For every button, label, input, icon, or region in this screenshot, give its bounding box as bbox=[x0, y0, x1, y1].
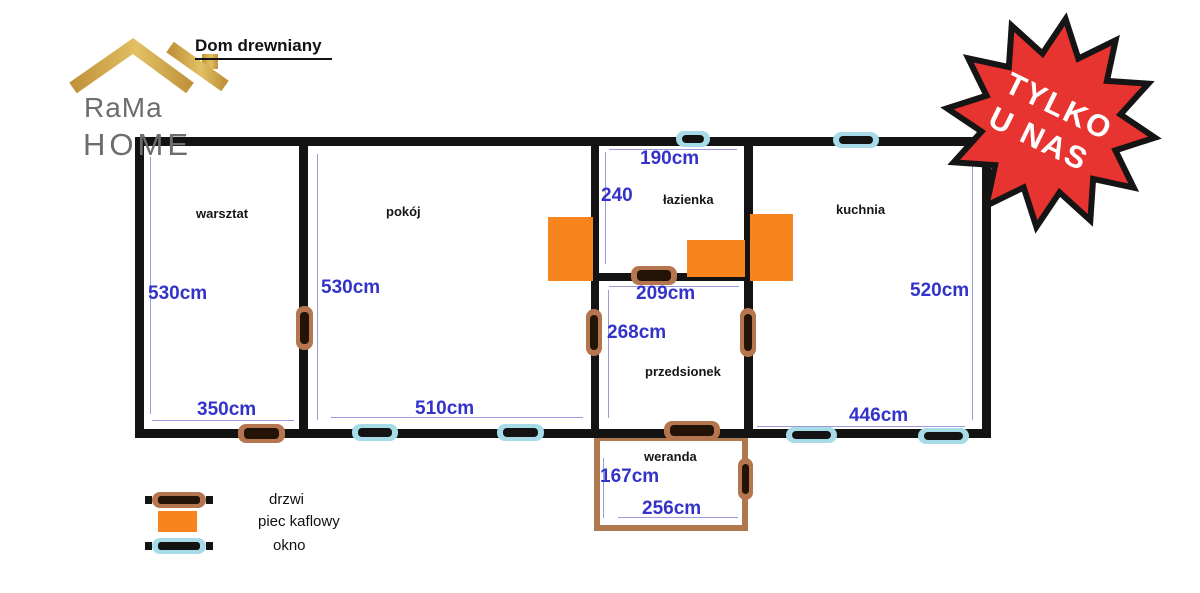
window-pane bbox=[792, 431, 831, 439]
dim-kuchnia-height: 520cm bbox=[910, 280, 969, 302]
door-leaf bbox=[670, 425, 714, 436]
legend-label-door: drzwi bbox=[269, 491, 304, 508]
dim-przedsionek-width: 209cm bbox=[636, 283, 695, 305]
window-icon bbox=[152, 538, 206, 554]
door-icon bbox=[152, 492, 206, 508]
door-leaf bbox=[590, 315, 598, 350]
window-pane bbox=[358, 428, 392, 437]
dim-warsztat-height: 530cm bbox=[148, 283, 207, 305]
dim-lazienka-height: 240 bbox=[601, 185, 633, 207]
window-symbol-pokoj-south-1 bbox=[352, 424, 398, 441]
window-pane bbox=[682, 135, 704, 143]
stove-symbol-kuchnia bbox=[750, 214, 793, 281]
logo-text-rama: RaMa bbox=[84, 92, 163, 124]
door-leaf bbox=[742, 464, 749, 494]
wall-lazienka-kuchnia bbox=[744, 137, 753, 438]
wall-stub bbox=[206, 542, 213, 550]
promo-badge-star-icon: TYLKO U NAS bbox=[938, 8, 1164, 238]
window-pane bbox=[839, 136, 873, 144]
window-symbol-lazienka-north bbox=[676, 131, 710, 147]
wall-stub bbox=[145, 496, 152, 504]
room-label-kuchnia: kuchnia bbox=[836, 202, 885, 217]
door-leaf bbox=[300, 312, 309, 344]
wall-left bbox=[135, 137, 144, 438]
door-symbol-warsztat-pokoj bbox=[296, 306, 313, 350]
wall-pokoj-lazienka bbox=[591, 137, 599, 438]
dim-warsztat-width: 350cm bbox=[197, 399, 256, 421]
dim-kuchnia-width: 446cm bbox=[849, 405, 908, 427]
page-title: Dom drewniany bbox=[195, 36, 332, 60]
stove-symbol-pokoj bbox=[548, 217, 593, 281]
dim-weranda-height: 167cm bbox=[600, 466, 659, 488]
window-pane bbox=[924, 432, 963, 440]
legend-label-window: okno bbox=[273, 537, 306, 554]
dim-weranda-width: 256cm bbox=[642, 498, 701, 520]
dim-line-przedsionek-v bbox=[608, 290, 609, 418]
wall-stub bbox=[206, 496, 213, 504]
dim-lazienka-width: 190cm bbox=[640, 148, 699, 170]
window-symbol-kuchnia-north bbox=[833, 132, 879, 148]
room-label-przedsionek: przedsionek bbox=[645, 364, 721, 379]
room-label-warsztat: warsztat bbox=[196, 206, 248, 221]
stove-symbol-lazienka bbox=[687, 240, 745, 277]
door-leaf bbox=[637, 270, 671, 281]
room-label-lazienka: łazienka bbox=[663, 192, 714, 207]
door-leaf bbox=[244, 428, 279, 439]
floor-plan-canvas: RaMa HOME Dom drewniany warsztat pokój ł… bbox=[0, 0, 1200, 593]
door-symbol-weranda-east bbox=[738, 458, 753, 500]
legend-label-stove: piec kaflowy bbox=[258, 513, 340, 530]
window-pane bbox=[503, 428, 538, 437]
dim-przedsionek-height: 268cm bbox=[607, 322, 666, 344]
star-shape bbox=[938, 8, 1164, 238]
window-symbol-kuchnia-south-2 bbox=[918, 428, 969, 444]
door-leaf bbox=[744, 314, 752, 351]
window-symbol-pokoj-south-2 bbox=[497, 424, 544, 441]
legend-row-window: okno bbox=[145, 537, 306, 554]
door-leaf bbox=[158, 496, 200, 504]
dim-line-lazienka-v bbox=[605, 152, 606, 264]
wall-warsztat-pokoj bbox=[299, 137, 308, 438]
logo-text-home: HOME bbox=[83, 127, 192, 163]
dim-pokoj-height: 530cm bbox=[321, 277, 380, 299]
dim-line-pokoj-v bbox=[317, 154, 318, 420]
room-label-pokoj: pokój bbox=[386, 204, 421, 219]
door-symbol-warsztat-south bbox=[238, 424, 285, 443]
legend-row-stove: piec kaflowy bbox=[158, 511, 340, 532]
window-pane bbox=[158, 542, 200, 550]
dim-pokoj-width: 510cm bbox=[415, 398, 474, 420]
door-symbol-przedsionek-kuchnia bbox=[740, 308, 756, 357]
door-symbol-przedsionek-weranda bbox=[664, 421, 720, 440]
window-symbol-kuchnia-south-1 bbox=[786, 427, 837, 443]
stove-icon bbox=[158, 511, 197, 532]
wall-stub bbox=[145, 542, 152, 550]
legend-row-door: drzwi bbox=[145, 491, 304, 508]
door-symbol-pokoj-przedsionek bbox=[586, 309, 602, 356]
room-label-weranda: weranda bbox=[644, 449, 697, 464]
